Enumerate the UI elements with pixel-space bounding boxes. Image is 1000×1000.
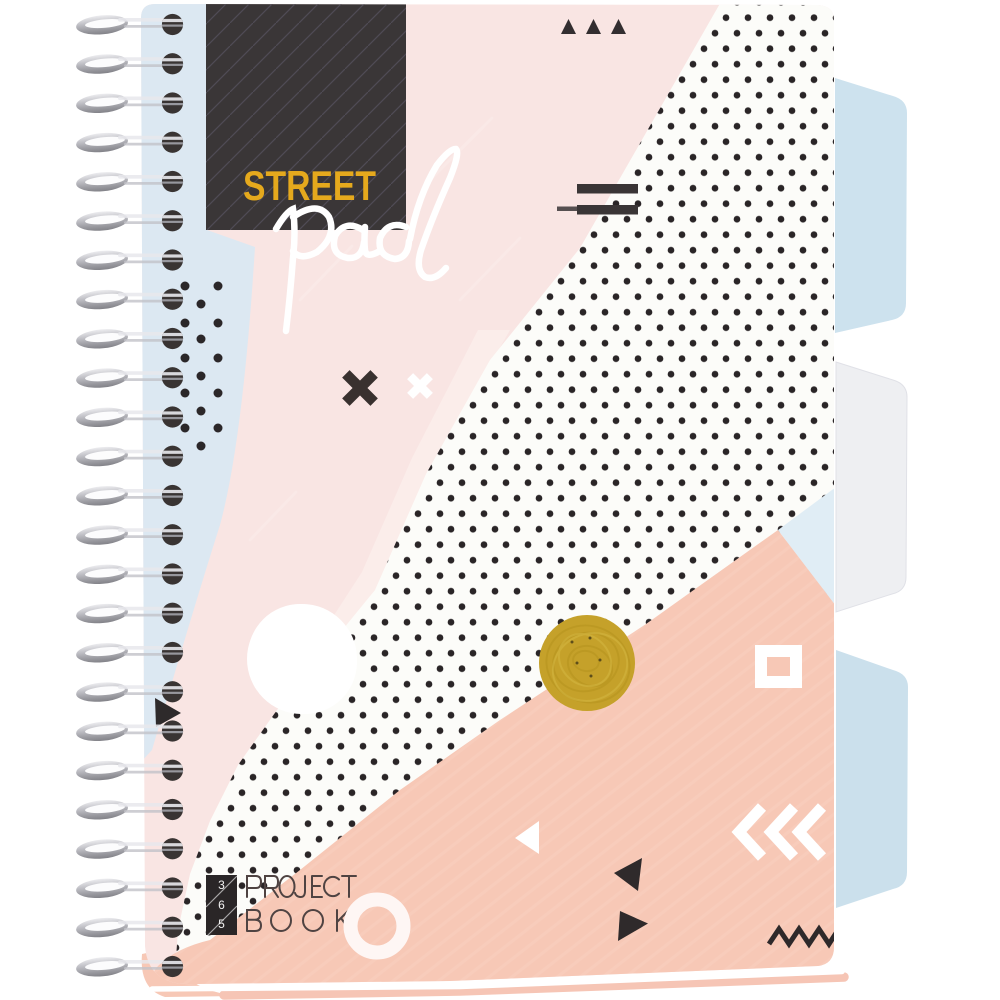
svg-text:3: 3	[218, 878, 225, 892]
svg-text:STREET: STREET	[243, 162, 376, 209]
svg-text:6: 6	[218, 898, 225, 912]
